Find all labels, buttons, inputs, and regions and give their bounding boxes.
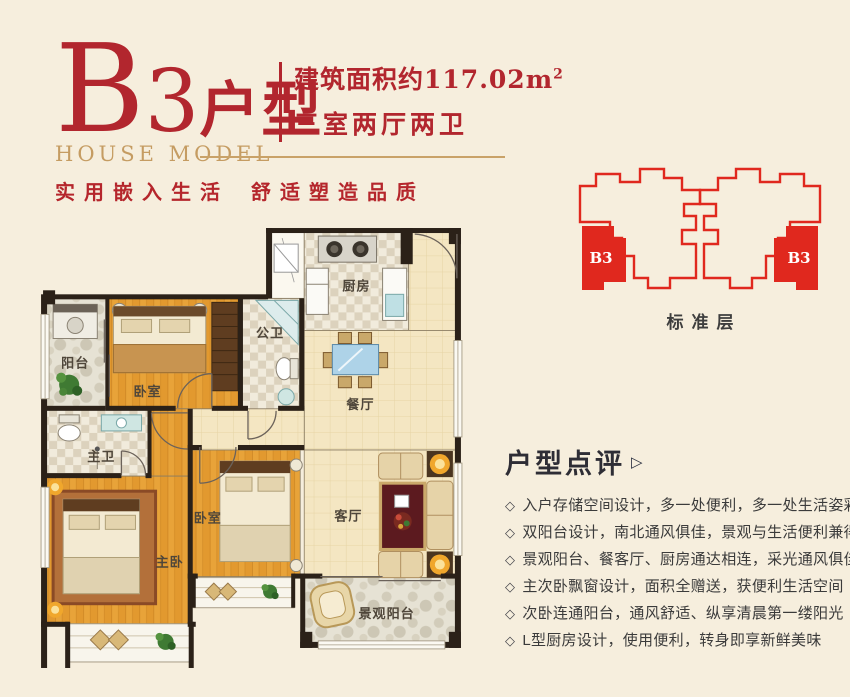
label-bedroom-master: 主卧 bbox=[156, 555, 184, 570]
washing-machine bbox=[53, 304, 97, 338]
tagline-left: 实用嵌入生活 bbox=[55, 182, 229, 204]
diamond-bullet-icon: ◇ bbox=[505, 632, 515, 649]
label-bedroom-north: 卧室 bbox=[133, 384, 161, 399]
diamond-bullet-icon: ◇ bbox=[505, 551, 515, 568]
bed-master bbox=[47, 479, 155, 618]
area-info: 建筑面积约117.02m2 三室两厅两卫 bbox=[294, 60, 564, 141]
review-item: ◇主次卧飘窗设计，面积全赠送，获便利生活空间 bbox=[505, 578, 850, 595]
review-item: ◇双阳台设计，南北通风俱佳，景观与生活便利兼得 bbox=[505, 524, 850, 541]
room-dining bbox=[304, 330, 457, 450]
review-section: 户型点评 ▷ ◇入户存储空间设计，多一处便利，多一处生活姿彩 ◇双阳台设计，南北… bbox=[505, 442, 850, 659]
keyplan-b3-left: B3 bbox=[589, 249, 612, 267]
review-title: 户型点评 ▷ bbox=[505, 442, 850, 481]
label-kitchen: 厨房 bbox=[342, 278, 370, 293]
tagline: 实用嵌入生活舒适塑造品质 bbox=[55, 176, 425, 205]
review-item: ◇L型厨房设计，使用便利，转身即享新鲜美味 bbox=[505, 632, 850, 649]
floorplan-drawing: 阳台 卧室 公卫 厨房 餐厅 主卫 主卧 卧室 客厅 景观阳台 bbox=[40, 224, 464, 670]
keyplan-drawing: B3 B3 bbox=[568, 160, 832, 298]
review-list: ◇入户存储空间设计，多一处便利，多一处生活姿彩 ◇双阳台设计，南北通风俱佳，景观… bbox=[505, 497, 850, 649]
entry-area bbox=[409, 232, 457, 330]
subtitle-en: HOUSE MODEL bbox=[55, 142, 273, 166]
review-item: ◇次卧连通阳台，通风舒适、纵享清晨第一缕阳光 bbox=[505, 605, 850, 622]
diamond-bullet-icon: ◇ bbox=[505, 497, 515, 514]
area-text: 建筑面积约117.02m2 bbox=[294, 60, 564, 96]
review-item: ◇景观阳台、餐客厅、厨房通达相连，采光通风俱佳 bbox=[505, 551, 850, 568]
brochure-page: { "colors": { "background": "#f6eedd", "… bbox=[0, 0, 850, 697]
label-dining: 餐厅 bbox=[345, 397, 374, 412]
diamond-bullet-icon: ◇ bbox=[505, 524, 515, 541]
unit-title: B 3 户型 bbox=[55, 28, 323, 150]
review-item: ◇入户存储空间设计，多一处便利，多一处生活姿彩 bbox=[505, 497, 850, 514]
unit-title-letter: B bbox=[55, 28, 145, 150]
keyplan-b3-right: B3 bbox=[787, 249, 810, 267]
triangle-marker-icon: ▷ bbox=[631, 453, 646, 471]
keyplan: B3 B3 标准层 bbox=[568, 160, 832, 333]
sofa-set bbox=[379, 451, 453, 578]
label-balcony-view: 景观阳台 bbox=[358, 606, 414, 621]
keyplan-caption: 标准层 bbox=[568, 308, 832, 333]
gold-rule bbox=[200, 156, 505, 158]
tagline-right: 舒适塑造品质 bbox=[251, 182, 425, 204]
floorplan: 阳台 卧室 公卫 厨房 餐厅 主卫 主卧 卧室 客厅 景观阳台 bbox=[40, 224, 464, 670]
diamond-bullet-icon: ◇ bbox=[505, 578, 515, 595]
unit-title-number: 3 bbox=[145, 59, 200, 145]
room-master-entry bbox=[150, 409, 190, 476]
label-living: 客厅 bbox=[334, 508, 362, 523]
balcony-planter bbox=[308, 580, 356, 630]
label-balcony-north: 阳台 bbox=[61, 356, 89, 371]
label-bedroom-second: 卧室 bbox=[194, 510, 222, 525]
diamond-bullet-icon: ◇ bbox=[505, 605, 515, 622]
layout-text: 三室两厅两卫 bbox=[294, 105, 564, 141]
header-divider bbox=[279, 62, 282, 142]
label-bath-public: 公卫 bbox=[256, 326, 284, 341]
bed-second bbox=[220, 459, 302, 572]
label-bath-master: 主卫 bbox=[87, 449, 115, 464]
